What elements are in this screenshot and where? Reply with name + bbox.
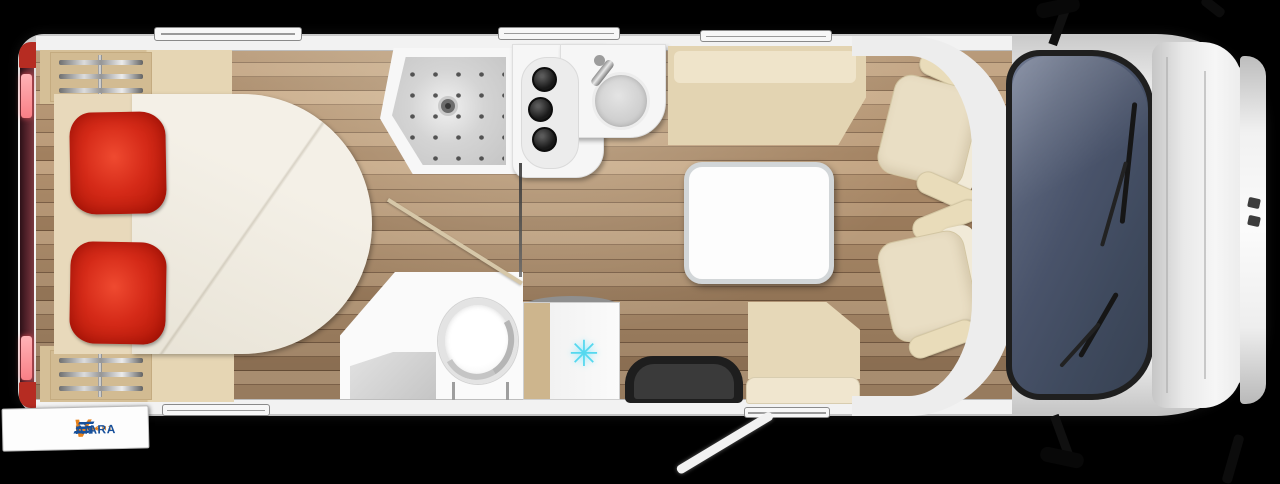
hanger-bar-icon bbox=[59, 386, 143, 391]
partition-wall bbox=[519, 163, 522, 277]
hanger-bar-icon bbox=[59, 88, 143, 93]
entry-door-open bbox=[675, 411, 774, 475]
side-seat-backrest bbox=[746, 377, 860, 404]
motorhome-floorplan: ✳ Brecht bbox=[0, 0, 1280, 484]
dinette-table bbox=[684, 162, 834, 284]
window-top-rear bbox=[154, 27, 302, 41]
hanger-bar-icon bbox=[59, 74, 143, 79]
toilet bbox=[438, 298, 518, 384]
cab-roof-frame bbox=[852, 36, 1014, 416]
snowflake-icon: ✳ bbox=[549, 336, 619, 372]
hob-burner-icon bbox=[532, 127, 557, 152]
red-pillow bbox=[69, 241, 167, 345]
grille-vent bbox=[1247, 215, 1261, 227]
entry-door-frame bbox=[744, 407, 830, 418]
window-top-kitchen bbox=[498, 27, 620, 40]
tail-light-icon bbox=[21, 74, 32, 118]
wardrobe-bottom bbox=[50, 350, 152, 400]
shower-drain-icon bbox=[438, 96, 458, 116]
hanger-bar-icon bbox=[59, 372, 143, 377]
toilet-leg bbox=[452, 382, 455, 400]
antenna-icon bbox=[1200, 0, 1227, 19]
brand-logo: Brecht Cara V an bbox=[2, 405, 150, 451]
grille-vent bbox=[1247, 197, 1261, 209]
tail-light-icon bbox=[21, 336, 32, 380]
antenna-icon bbox=[1221, 434, 1244, 484]
entry-step-mat bbox=[625, 356, 743, 403]
window-top-lounge bbox=[700, 30, 832, 42]
front-bumper bbox=[1240, 56, 1266, 404]
window-bottom-rear bbox=[162, 404, 270, 416]
side-mirror-bottom-head bbox=[1039, 446, 1085, 470]
red-pillow bbox=[69, 111, 167, 215]
hanger-bar-icon bbox=[59, 60, 143, 65]
hob-burner-icon bbox=[532, 67, 557, 92]
faucet-base bbox=[594, 55, 605, 66]
hood bbox=[1152, 42, 1242, 408]
hob-burner-icon bbox=[528, 97, 553, 122]
entry-step-mat-inner bbox=[634, 364, 734, 399]
toilet-leg bbox=[506, 382, 509, 400]
bench-sofa-backrest bbox=[674, 51, 856, 83]
hanger-bar-icon bbox=[59, 358, 143, 363]
bench-sofa bbox=[668, 46, 866, 145]
